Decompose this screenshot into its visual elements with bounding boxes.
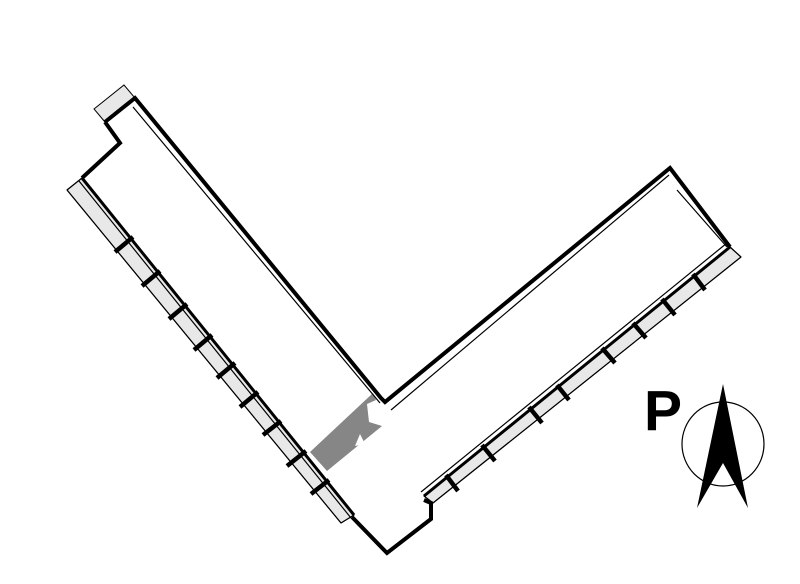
compass-label: P (644, 379, 682, 443)
site-plan: P (0, 0, 800, 584)
